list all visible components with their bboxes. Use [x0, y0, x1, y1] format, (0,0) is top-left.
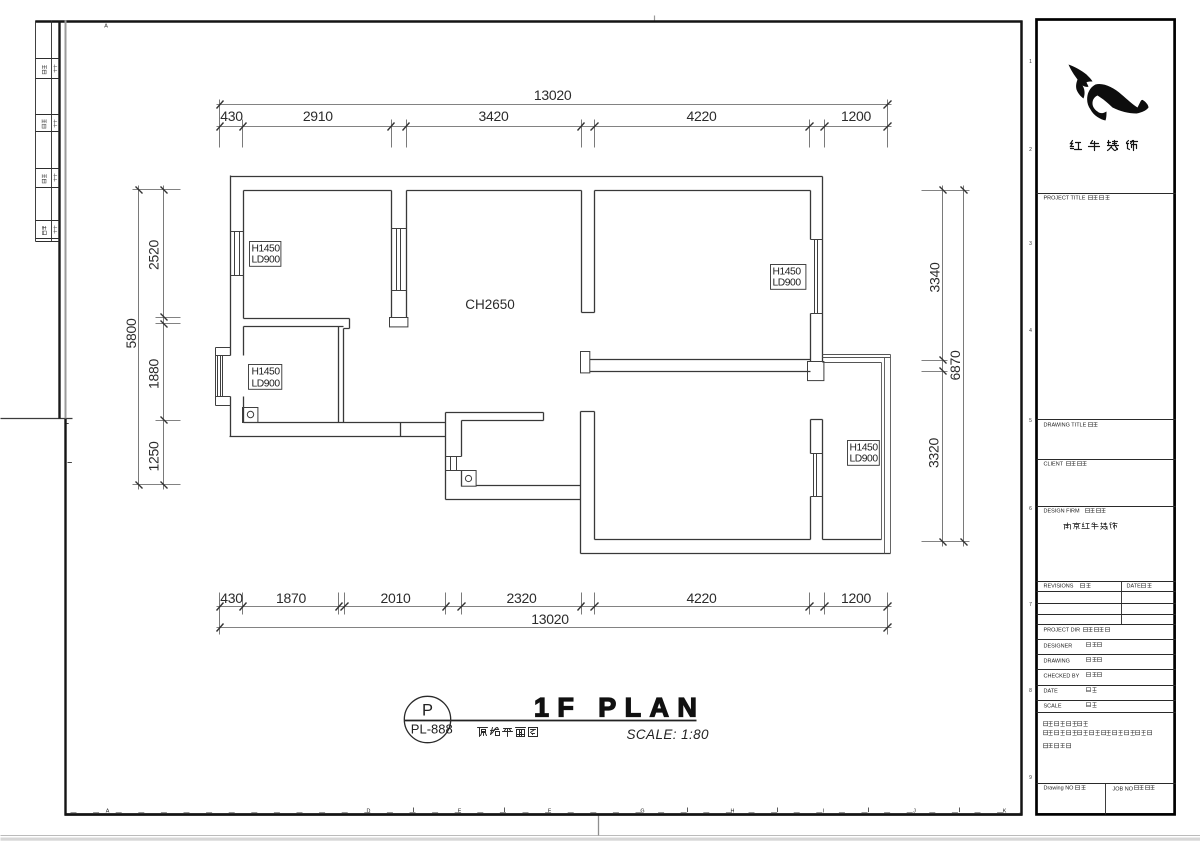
svg-text:SCALE: SCALE [1044, 704, 1062, 710]
svg-text:13020: 13020 [531, 611, 569, 627]
svg-text:PL-888: PL-888 [411, 721, 453, 736]
svg-text:430: 430 [220, 108, 243, 124]
svg-text:D: D [367, 809, 371, 815]
svg-text:H1450: H1450 [252, 367, 281, 378]
svg-text:3420: 3420 [479, 108, 509, 124]
svg-text:LD900: LD900 [773, 278, 802, 289]
svg-text:430: 430 [220, 590, 243, 606]
svg-text:LD900: LD900 [850, 454, 879, 465]
svg-text:P: P [422, 702, 433, 720]
svg-text:K: K [1003, 809, 1007, 815]
svg-text:8: 8 [1029, 688, 1032, 694]
svg-text:1200: 1200 [841, 108, 871, 124]
svg-text:DATE: DATE [1044, 689, 1059, 695]
svg-text:CH2650: CH2650 [465, 297, 515, 312]
svg-text:5: 5 [1029, 418, 1032, 424]
svg-text:4: 4 [1029, 328, 1032, 334]
svg-text:9: 9 [1029, 775, 1032, 781]
svg-text:1200: 1200 [841, 590, 871, 606]
svg-text:7: 7 [1029, 602, 1032, 608]
svg-text:J: J [913, 809, 916, 815]
svg-text:4220: 4220 [687, 590, 717, 606]
svg-text:1: 1 [1029, 59, 1032, 65]
svg-text:2: 2 [1029, 147, 1032, 153]
svg-text:1880: 1880 [146, 359, 162, 389]
svg-text:2010: 2010 [381, 590, 411, 606]
svg-text:E: E [458, 809, 462, 815]
svg-text:2520: 2520 [146, 240, 162, 270]
svg-text:DESIGNER: DESIGNER [1044, 644, 1073, 650]
svg-text:REVISIONS: REVISIONS [1044, 584, 1074, 590]
svg-text:DATE: DATE [1127, 584, 1142, 590]
svg-text:PROJECT DIR: PROJECT DIR [1044, 628, 1081, 634]
svg-text:SCALE: 1:80: SCALE: 1:80 [627, 727, 710, 742]
svg-text:6870: 6870 [947, 350, 963, 380]
svg-text:3: 3 [1029, 241, 1032, 247]
svg-text:6: 6 [1029, 506, 1032, 512]
svg-text:A: A [104, 24, 108, 30]
svg-text:H: H [731, 809, 735, 815]
svg-text:DRAWING: DRAWING [1044, 659, 1070, 665]
svg-text:DRAWING TITLE: DRAWING TITLE [1044, 423, 1087, 429]
svg-text:DESIGN FIRM: DESIGN FIRM [1044, 509, 1080, 515]
svg-text:JOB NO: JOB NO [1113, 787, 1134, 793]
svg-text:1250: 1250 [146, 441, 162, 471]
svg-text:H1450: H1450 [773, 267, 802, 278]
svg-text:13020: 13020 [534, 87, 572, 103]
svg-text:CHECKED BY: CHECKED BY [1044, 674, 1080, 680]
svg-text:I: I [823, 809, 825, 815]
svg-text:A: A [106, 809, 110, 815]
svg-text:2320: 2320 [507, 590, 537, 606]
svg-text:4220: 4220 [687, 108, 717, 124]
svg-text:H1450: H1450 [850, 443, 879, 454]
svg-text:2910: 2910 [303, 108, 333, 124]
svg-text:H1450: H1450 [252, 244, 281, 255]
svg-text:1F PLAN: 1F PLAN [534, 693, 705, 723]
svg-text:CLIENT: CLIENT [1044, 462, 1064, 468]
svg-text:PROJECT TITLE: PROJECT TITLE [1044, 196, 1086, 202]
svg-text:1870: 1870 [276, 590, 306, 606]
svg-text:LD900: LD900 [252, 255, 281, 266]
svg-text:LD900: LD900 [252, 379, 281, 390]
svg-text:5800: 5800 [123, 318, 139, 348]
svg-text:Drawing NO: Drawing NO [1044, 786, 1075, 792]
svg-text:3320: 3320 [926, 438, 942, 468]
svg-text:G: G [640, 809, 644, 815]
svg-text:3340: 3340 [927, 262, 943, 292]
